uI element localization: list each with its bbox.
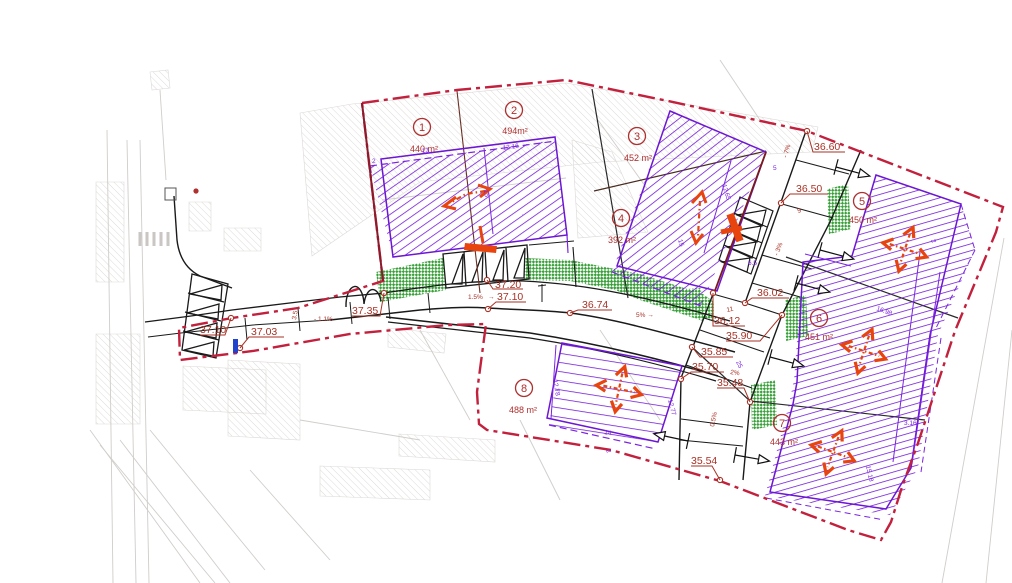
svg-text:4: 4 <box>618 213 624 225</box>
svg-text:3: 3 <box>634 131 640 143</box>
svg-text:392 m²: 392 m² <box>608 235 636 245</box>
svg-text:8: 8 <box>521 383 527 395</box>
svg-text:13: 13 <box>421 147 430 155</box>
svg-text:35.85: 35.85 <box>701 346 727 358</box>
svg-text:488 m²: 488 m² <box>509 405 537 415</box>
svg-text:37.03: 37.03 <box>251 326 277 338</box>
svg-text:451 m²: 451 m² <box>805 332 833 342</box>
svg-text:2: 2 <box>511 105 517 117</box>
svg-text:36.12: 36.12 <box>714 315 740 327</box>
svg-text:15: 15 <box>482 189 490 198</box>
svg-text:37.35: 37.35 <box>352 305 378 317</box>
svg-text:7: 7 <box>779 418 785 430</box>
svg-text:494m²: 494m² <box>502 126 528 136</box>
svg-text:37.10: 37.10 <box>497 291 523 303</box>
svg-text:35.90: 35.90 <box>726 330 752 342</box>
svg-text:36.60: 36.60 <box>814 141 840 153</box>
svg-text:2%: 2% <box>730 369 740 377</box>
svg-text:36.50: 36.50 <box>796 183 822 195</box>
svg-text:5: 5 <box>859 196 865 208</box>
svg-text:36.02: 36.02 <box>757 287 783 299</box>
svg-text:37.20: 37.20 <box>495 279 521 291</box>
svg-text:452 m²: 452 m² <box>624 153 652 163</box>
svg-text:450 m²: 450 m² <box>849 215 877 225</box>
svg-text:35.48: 35.48 <box>717 377 743 389</box>
svg-text:37.10: 37.10 <box>200 324 226 336</box>
svg-text:1.5%: 1.5% <box>468 294 483 301</box>
svg-text:6.5: 6.5 <box>748 260 757 267</box>
svg-text:443 m²: 443 m² <box>770 437 798 447</box>
svg-text:2: 2 <box>372 158 376 165</box>
svg-text:35.54: 35.54 <box>691 455 717 467</box>
svg-text:1: 1 <box>419 122 425 134</box>
svg-text:36.74: 36.74 <box>582 299 608 311</box>
svg-text:35.70: 35.70 <box>692 361 718 373</box>
svg-text:5: 5 <box>773 165 777 172</box>
svg-text:- 1.1%: - 1.1% <box>314 316 333 323</box>
svg-text:5% →: 5% → <box>636 312 654 319</box>
svg-text:6: 6 <box>816 313 822 325</box>
svg-text:→: → <box>488 294 495 301</box>
svg-text:3.16: 3.16 <box>904 420 917 427</box>
